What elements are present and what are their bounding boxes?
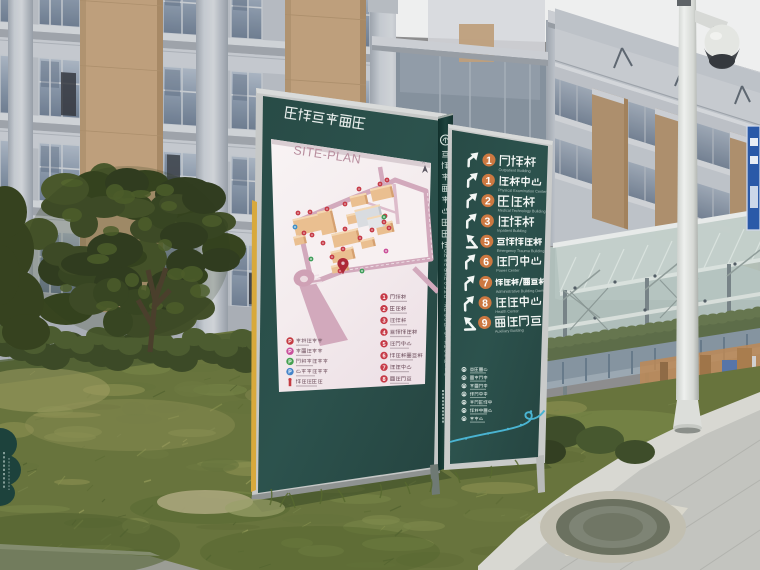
svg-text:P: P [288, 349, 292, 355]
svg-text:P: P [288, 370, 292, 376]
svg-text:8: 8 [482, 298, 488, 310]
svg-text:Emergency Trauma Building: Emergency Trauma Building [497, 249, 545, 253]
svg-text:5: 5 [484, 236, 490, 248]
svg-text:5: 5 [382, 342, 385, 348]
svg-text:7: 7 [382, 365, 385, 371]
svg-text:1: 1 [485, 175, 491, 187]
svg-text:6: 6 [382, 354, 385, 360]
svg-text:2: 2 [382, 307, 385, 313]
svg-text:3: 3 [484, 216, 490, 228]
svg-text:Power Center: Power Center [496, 269, 520, 273]
svg-text:2: 2 [485, 195, 491, 207]
svg-text:9: 9 [481, 317, 487, 329]
svg-text:N: N [422, 160, 425, 165]
svg-text:6: 6 [483, 256, 489, 268]
svg-text:7: 7 [483, 277, 489, 289]
svg-text:1: 1 [382, 295, 385, 301]
svg-text:8: 8 [382, 377, 385, 383]
svg-text:P: P [288, 359, 292, 365]
svg-text:Health Center: Health Center [495, 309, 519, 314]
svg-text:P: P [288, 339, 292, 345]
svg-text:3: 3 [382, 319, 385, 325]
svg-text:Inpatient Building: Inpatient Building [497, 229, 526, 234]
svg-text:1: 1 [486, 155, 492, 167]
